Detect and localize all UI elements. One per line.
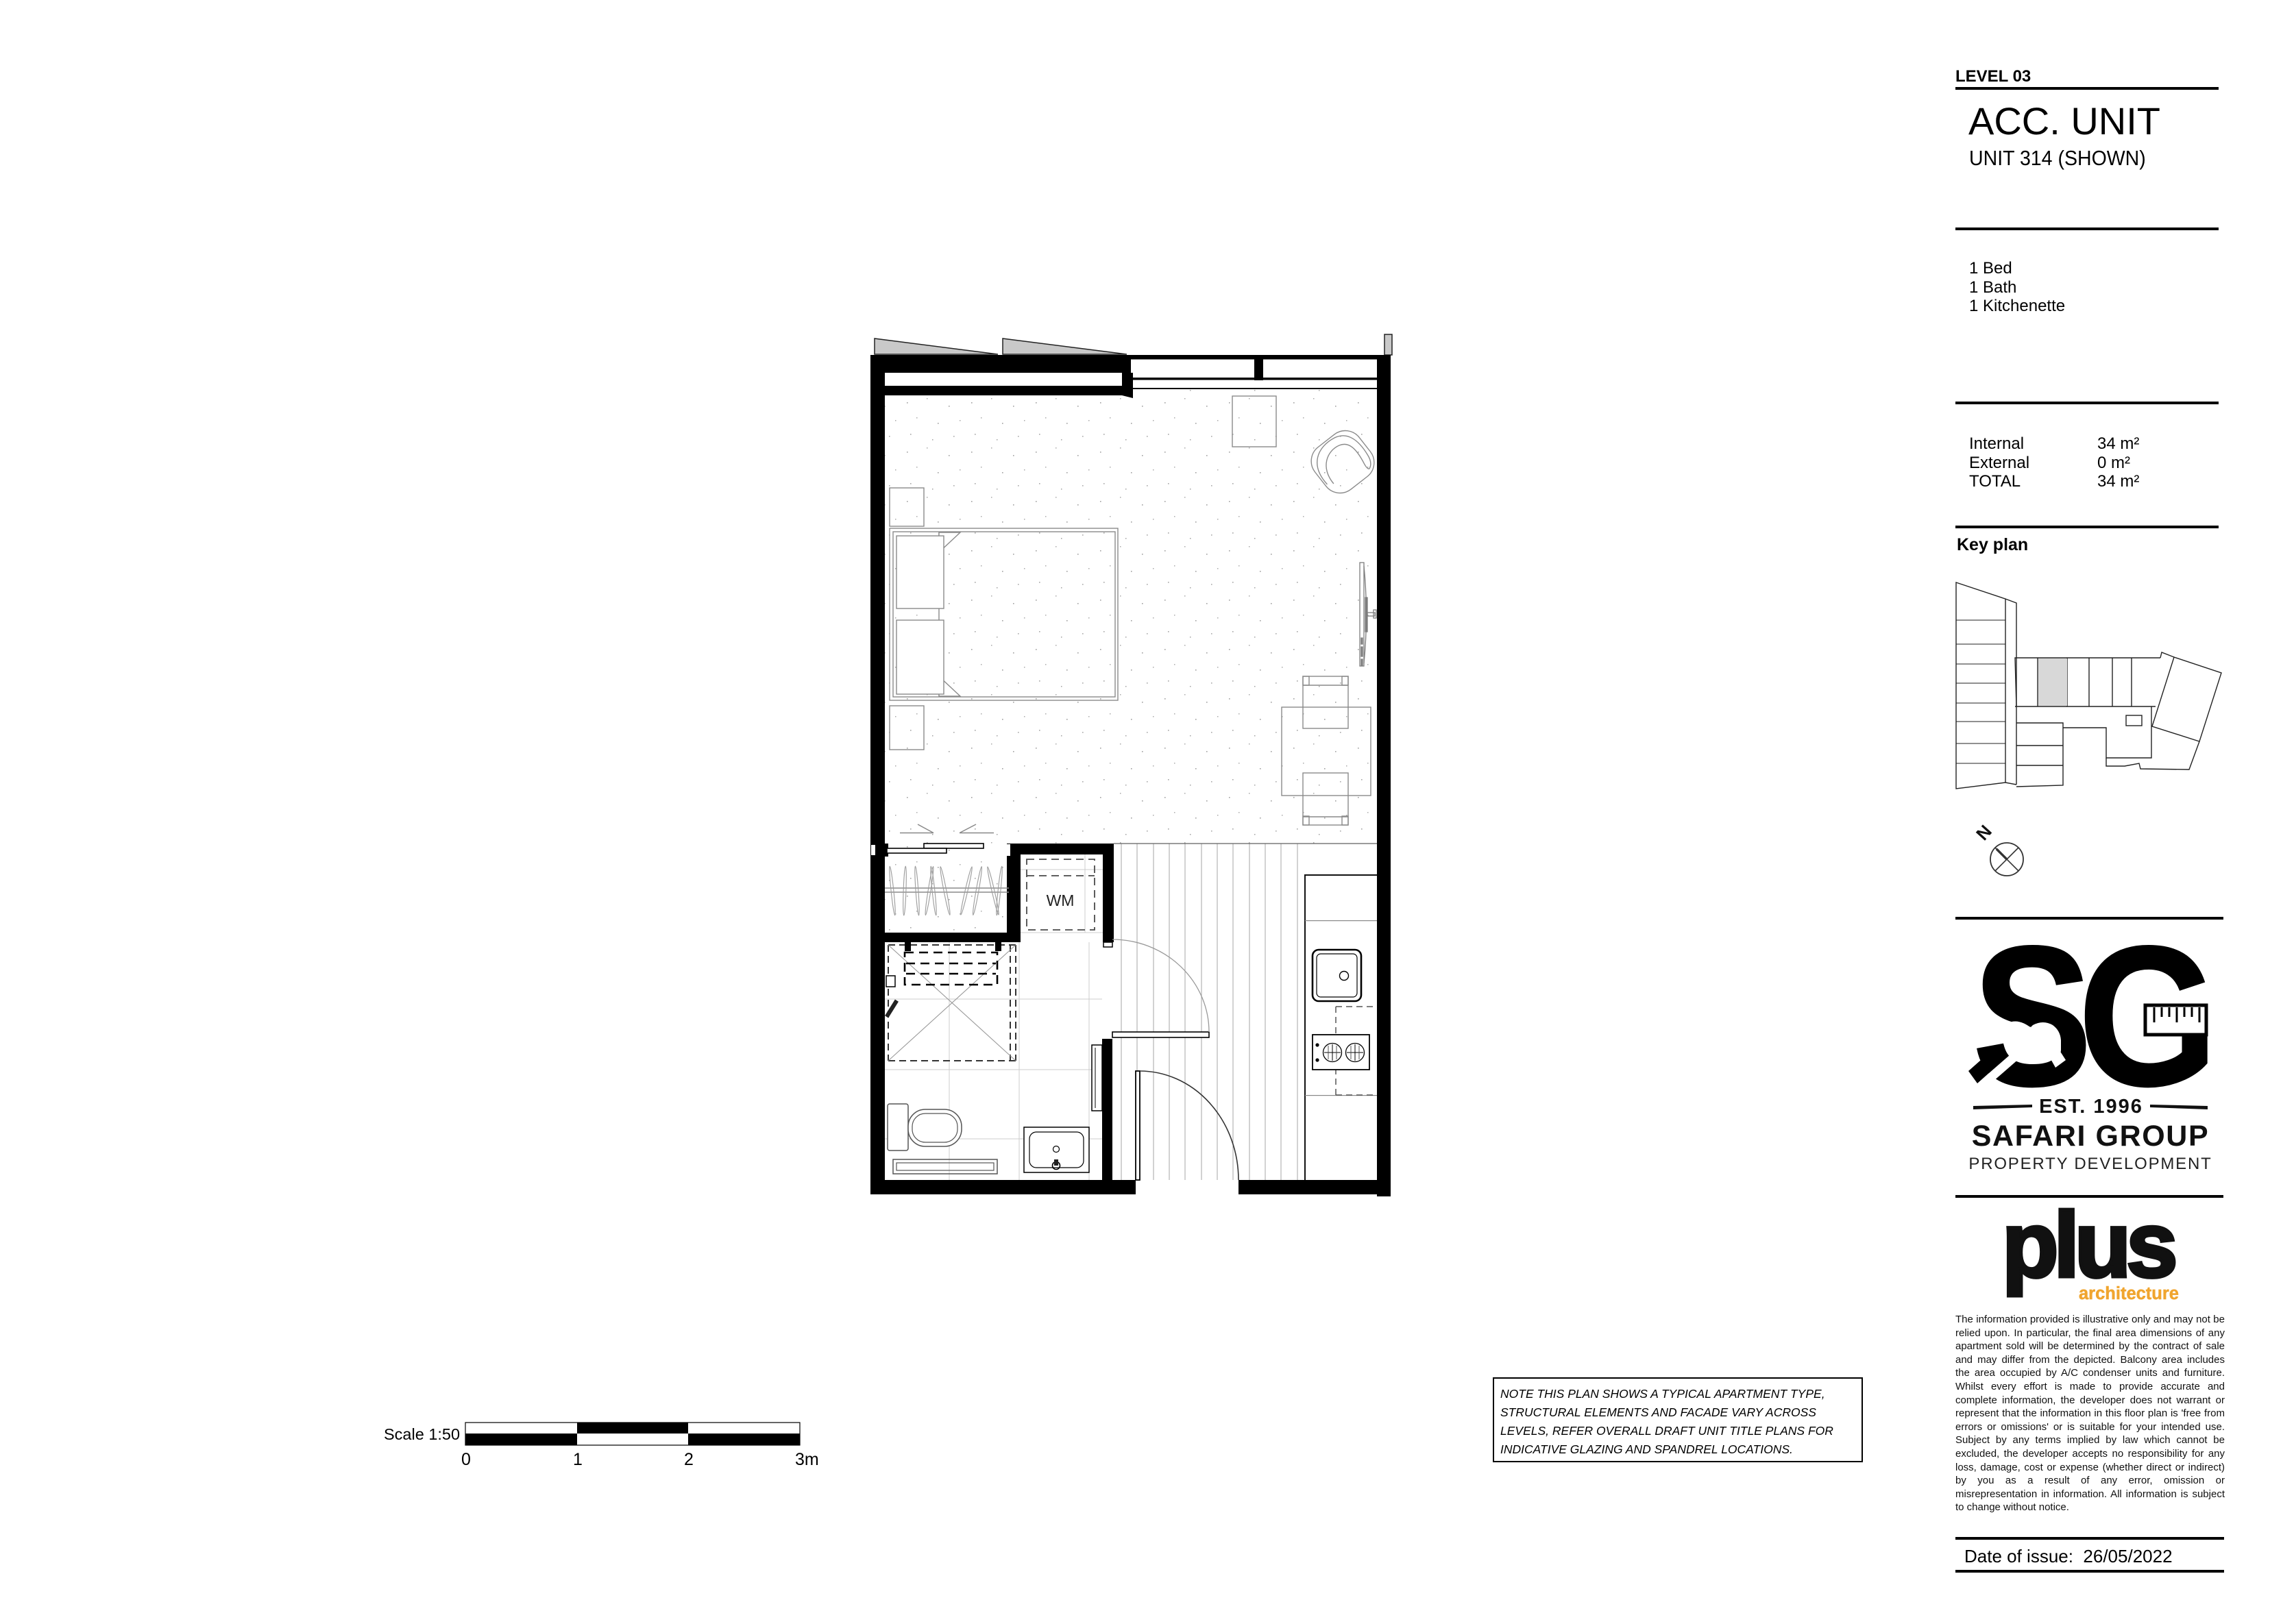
svg-text:2: 2 (684, 1450, 694, 1469)
svg-text:PROPERTY DEVELOPMENT: PROPERTY DEVELOPMENT (1968, 1155, 2212, 1173)
svg-text:SAFARI GROUP: SAFARI GROUP (1972, 1120, 2210, 1153)
svg-text:Scale 1:50: Scale 1:50 (384, 1425, 460, 1443)
svg-text:1: 1 (573, 1450, 583, 1469)
svg-text:N: N (1972, 821, 1996, 844)
svg-text:EST. 1996: EST. 1996 (2039, 1096, 2143, 1118)
svg-text:3m: 3m (795, 1450, 819, 1469)
svg-text:0: 0 (461, 1450, 471, 1469)
svg-text:WM: WM (1047, 891, 1075, 909)
